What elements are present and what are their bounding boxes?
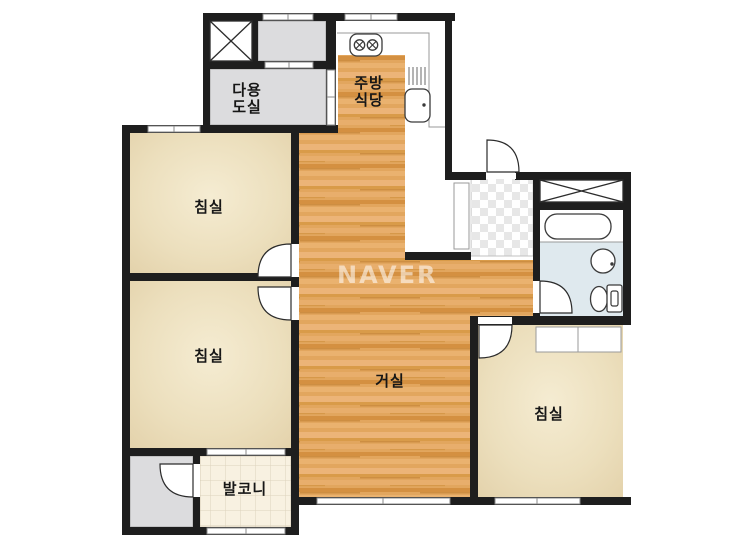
window [327, 70, 335, 125]
closet-x-icon [540, 180, 623, 202]
door-opening [291, 244, 299, 277]
window [148, 126, 200, 132]
room-utility [210, 69, 326, 125]
window [207, 449, 285, 455]
wall-segment [445, 172, 486, 180]
floorplan-canvas: 다용도실 주방식당 침실 침실 거실 침실 발코니 NAVER [0, 0, 750, 549]
label-bedroom-right: 침실 [534, 405, 564, 423]
window [263, 14, 313, 20]
door-arc-entrance [487, 140, 519, 172]
window [495, 498, 580, 504]
dish-rack-icon [409, 67, 425, 85]
window [317, 498, 450, 504]
door-opening [291, 287, 299, 320]
label-bedroom-top-left: 침실 [194, 198, 224, 216]
room-top-closet [258, 21, 326, 61]
washbasin-icon [591, 249, 615, 273]
floorplan: 다용도실 주방식당 침실 침실 거실 침실 발코니 NAVER [0, 0, 750, 549]
wall-segment [533, 202, 631, 210]
window [265, 62, 313, 68]
bathtub-icon [545, 214, 611, 239]
door-opening [533, 281, 540, 313]
wall-segment [445, 15, 452, 180]
wall-segment [122, 125, 130, 535]
window [207, 528, 285, 534]
label-utility: 다용도실 [232, 81, 262, 116]
bedroom-right-closet [536, 327, 621, 352]
shaft-x-icon [210, 21, 252, 61]
wall-segment [470, 316, 478, 505]
door-opening [486, 173, 516, 179]
stove-icon [350, 34, 382, 56]
window [345, 14, 397, 20]
sink-icon [405, 89, 430, 122]
wall-segment [405, 252, 471, 260]
wall-segment [515, 172, 631, 180]
label-kitchen: 주방식당 [354, 74, 384, 109]
room-entrance-checker [471, 177, 533, 256]
shoe-closet [454, 183, 469, 249]
naver-watermark: NAVER [337, 261, 437, 289]
wall-segment [203, 13, 210, 133]
label-bedroom-bottom-left: 침실 [194, 347, 224, 365]
wall-segment [623, 172, 631, 325]
label-balcony: 발코니 [223, 480, 267, 498]
door-opening [193, 464, 200, 497]
wall-segment [252, 13, 258, 69]
wall-segment [291, 125, 299, 535]
label-living: 거실 [375, 372, 405, 390]
door-opening [478, 317, 512, 324]
